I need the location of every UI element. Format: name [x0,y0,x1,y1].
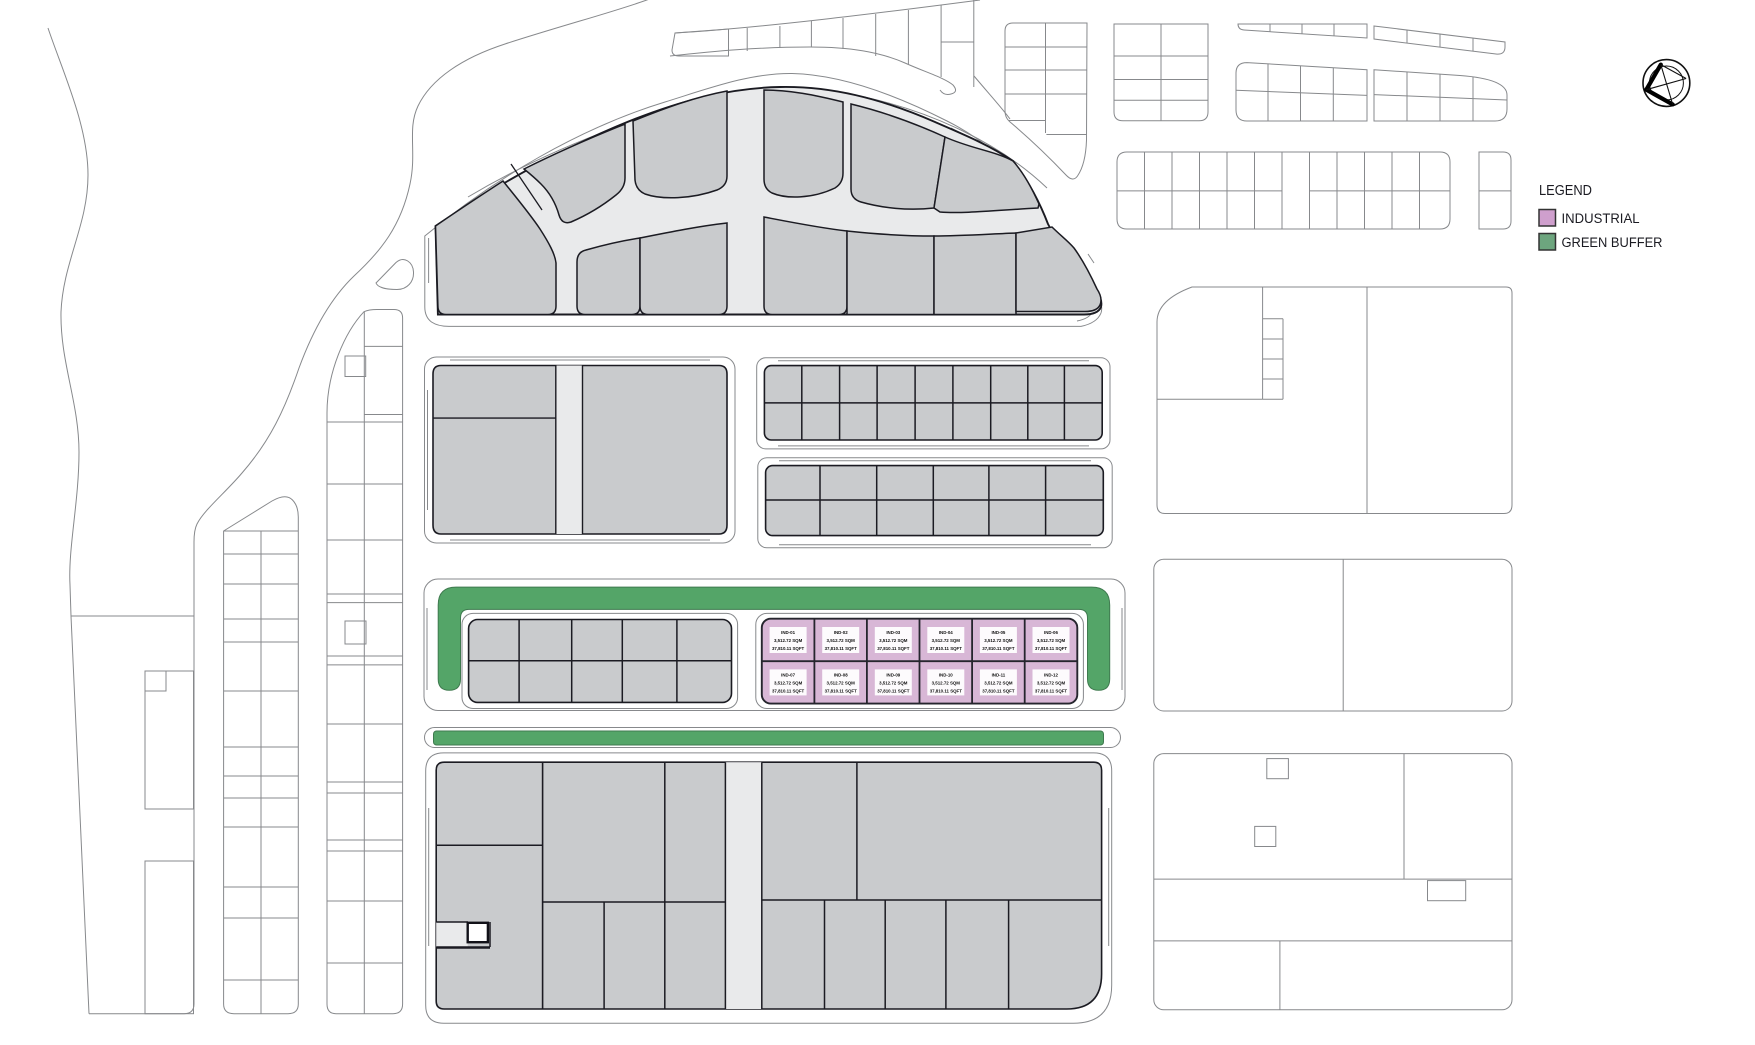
svg-text:37,810.11 SQFT: 37,810.11 SQFT [772,646,805,651]
svg-text:IND-08: IND-08 [834,672,848,677]
svg-text:IND-07: IND-07 [781,672,795,677]
svg-text:IND-10: IND-10 [939,672,953,677]
svg-text:37,810.11 SQFT: 37,810.11 SQFT [982,646,1015,651]
svg-text:GREEN BUFFER: GREEN BUFFER [1562,235,1663,250]
svg-text:3,512.72 SQM: 3,512.72 SQM [774,680,803,685]
svg-text:37,810.11 SQFT: 37,810.11 SQFT [825,688,858,693]
svg-text:37,810.11 SQFT: 37,810.11 SQFT [982,688,1015,693]
svg-text:3,512.72 SQM: 3,512.72 SQM [1037,638,1066,643]
svg-text:IND-06: IND-06 [1044,630,1058,635]
svg-text:3,512.72 SQM: 3,512.72 SQM [932,638,961,643]
svg-text:37,810.11 SQFT: 37,810.11 SQFT [825,646,858,651]
svg-text:3,512.72 SQM: 3,512.72 SQM [879,680,908,685]
svg-text:37,810.11 SQFT: 37,810.11 SQFT [877,688,910,693]
svg-text:IND-09: IND-09 [886,672,900,677]
svg-text:3,512.72 SQM: 3,512.72 SQM [1037,680,1066,685]
svg-text:IND-02: IND-02 [834,630,848,635]
svg-text:3,512.72 SQM: 3,512.72 SQM [984,680,1013,685]
svg-text:IND-03: IND-03 [886,630,900,635]
svg-text:3,512.72 SQM: 3,512.72 SQM [879,638,908,643]
svg-text:IND-11: IND-11 [992,672,1006,677]
svg-text:IND-05: IND-05 [991,630,1005,635]
svg-text:3,512.72 SQM: 3,512.72 SQM [827,680,856,685]
svg-text:IND-12: IND-12 [1044,672,1058,677]
svg-text:IND-04: IND-04 [939,630,953,635]
svg-text:37,810.11 SQFT: 37,810.11 SQFT [1035,646,1068,651]
svg-text:3,512.72 SQM: 3,512.72 SQM [827,638,856,643]
svg-text:3,512.72 SQM: 3,512.72 SQM [932,680,961,685]
svg-text:37,810.11 SQFT: 37,810.11 SQFT [1035,688,1068,693]
svg-text:INDUSTRIAL: INDUSTRIAL [1562,211,1640,226]
svg-text:37,810.11 SQFT: 37,810.11 SQFT [930,646,963,651]
svg-text:IND-01: IND-01 [781,630,795,635]
svg-text:37,810.11 SQFT: 37,810.11 SQFT [930,688,963,693]
svg-text:3,512.72 SQM: 3,512.72 SQM [774,638,803,643]
svg-text:LEGEND: LEGEND [1539,183,1592,199]
svg-text:37,810.11 SQFT: 37,810.11 SQFT [877,646,910,651]
svg-text:3,512.72 SQM: 3,512.72 SQM [984,638,1013,643]
svg-text:37,810.11 SQFT: 37,810.11 SQFT [772,688,805,693]
